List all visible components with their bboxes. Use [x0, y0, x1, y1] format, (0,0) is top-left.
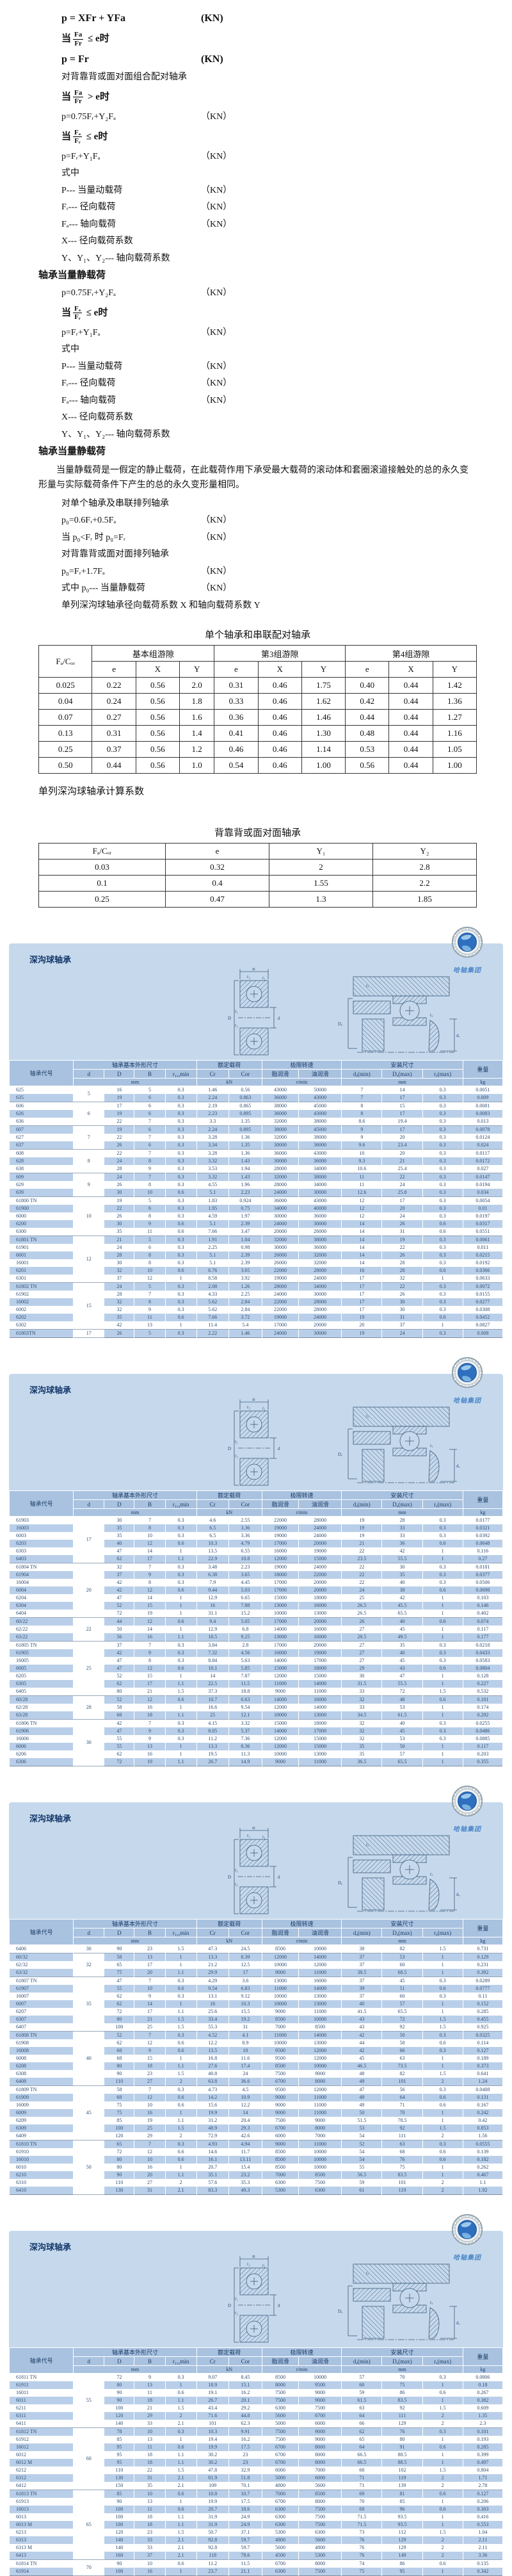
cell: 14000 [299, 1953, 342, 1962]
cell: 40000 [299, 1205, 342, 1212]
cell: 12000 [299, 2086, 342, 2094]
cell: 0.3 [422, 1205, 463, 1212]
cell: 1 [165, 2109, 196, 2117]
unit-header: kN [196, 1079, 262, 1086]
cell: 2.8 [372, 860, 476, 876]
cell: 39 [342, 1985, 382, 1993]
cell: 1.1 [165, 2117, 196, 2124]
cell: 0.0804 [463, 1665, 502, 1672]
cell: 85 [104, 2117, 134, 2124]
cell: 21 [104, 1236, 134, 1244]
table-row: 62551650.31.460.5643000500007140.30.0051 [10, 1086, 503, 1095]
cell: 120 [104, 2529, 134, 2536]
cell: 26000 [262, 1259, 298, 1267]
group-header: 基本组游隙 [92, 646, 214, 662]
cell: 16 [134, 1704, 165, 1711]
svg-text:r₁: r₁ [235, 2296, 238, 2301]
cell: 6700 [262, 2498, 298, 2506]
cell: 0.32 [165, 860, 269, 876]
cell: 42 [104, 1579, 134, 1586]
formula-line: 式中 p₀--- 当量静载荷（KN） [61, 583, 512, 594]
svg-text:rₐ: rₐ [430, 1443, 433, 1448]
cell: 1.6 [180, 710, 214, 726]
fraction-suffix: > e时 [85, 92, 109, 102]
cell: 19 [104, 1094, 134, 1102]
formula-text: 当 p₀<Fᵣ 时 p₀=Fᵣ [61, 532, 201, 544]
group-header: 极限转速 [262, 2348, 341, 2357]
cell: 80 [104, 2381, 134, 2389]
cell: 10.8 [196, 2490, 228, 2499]
header-row: dDBr₁,₂minCrCor脂润滑油润滑dₐ(min)Dₐ(max)rₐ(ma… [10, 2357, 503, 2366]
formula-line: p=0.75Fᵣ+Y₂Fₐ（KN） [61, 288, 512, 299]
bearing-code-cell: 6204 [10, 1594, 74, 1602]
bearing-code-cell: 16001 [10, 1259, 74, 1267]
cell: 0.3 [165, 1165, 196, 1173]
cell: 90 [104, 2171, 134, 2179]
fraction-denominator: Fᵣ [73, 137, 82, 145]
cell: 68 [104, 2094, 134, 2101]
bearing-code-cell: 61811 TN [10, 2374, 74, 2382]
sub-header: 油润滑 [299, 2357, 342, 2366]
bearing-code-cell: 6001 [10, 1251, 74, 1259]
cell: 0.455 [463, 2016, 502, 2023]
cell: 15000 [262, 1665, 298, 1672]
formula-line: p₀=0.6Fᵣ+0.5Fₐ（KN） [61, 515, 512, 526]
cell: 45 [382, 1657, 422, 1665]
cell: 31 [382, 1228, 422, 1236]
unit-header: kg [463, 1937, 502, 1945]
bore-diameter-cell: 9 [74, 1173, 104, 1197]
cell: 26 [342, 1618, 382, 1626]
svg-text:D: D [228, 1446, 231, 1451]
cell: 27 [342, 1657, 382, 1665]
cell: 1.5 [422, 2023, 463, 2032]
sub-header: rₐ(max) [422, 1500, 463, 1509]
formula-text: Fₐ--- 轴向载荷 [61, 395, 201, 407]
cell: 16.1 [196, 2156, 228, 2164]
cell: 8000 [299, 2560, 342, 2568]
cell: 13000 [299, 1610, 342, 1618]
cell: 24 [104, 1244, 134, 1251]
cell: 6300 [262, 2521, 298, 2529]
cell: 6700 [262, 2124, 298, 2132]
cell: 14 [196, 1672, 228, 1680]
formula-unit: （KN） [201, 362, 232, 371]
cell: 1 [422, 1633, 463, 1642]
cell: 2 [269, 860, 372, 876]
cell: 20000 [299, 1579, 342, 1586]
bearing-mounting-diagram: rₐ Dₐ rₐ dₐ [329, 973, 463, 1059]
cell: 110 [104, 2179, 134, 2187]
cell: 68 [104, 2055, 134, 2062]
cell: 26.7 [196, 1758, 228, 1766]
cell: 30 [104, 1517, 134, 1525]
cell: 1 [422, 1969, 463, 1977]
cell: 6 [134, 1141, 165, 1150]
cell: 1.35 [228, 1118, 262, 1126]
cell: 0.6 [422, 2506, 463, 2513]
cell: 14000 [262, 1657, 298, 1665]
bearing-table: 轴承代号轴承基本外形尺寸额定载荷极限转速安装尺寸重量dDBr₁,₂minCrCo… [9, 2347, 503, 2576]
cell: 14 [342, 1220, 382, 1228]
cell: 0.6 [422, 1220, 463, 1228]
column-header: 轴承代号 [10, 1061, 74, 1086]
cell: 6700 [299, 2412, 342, 2420]
cell: 1 [422, 1555, 463, 1563]
cell: 61.5 [382, 1711, 422, 1720]
cell: 111 [382, 2132, 422, 2140]
cell: 13.3 [196, 1953, 228, 1962]
cell: 71 [382, 2101, 422, 2109]
table-row: 0.070.270.561.60.360.461.460.440.441.27 [39, 710, 477, 726]
cell: 0.6 [422, 1267, 463, 1275]
cell: 43000 [299, 1110, 342, 1118]
cell: 9 [134, 2047, 165, 2055]
cell: 15 [382, 1102, 422, 1111]
cell: 5600 [299, 2482, 342, 2490]
fraction: FaFr [73, 31, 83, 47]
cell: 86 [382, 2389, 422, 2397]
cell: 31.1 [196, 1610, 228, 1618]
cell: 13.1 [196, 1993, 228, 2000]
formula-unit: （KN） [201, 567, 232, 576]
formula-line: Y、Y₁、Y₂--- 轴向载荷系数 [61, 253, 512, 265]
cell: 0.416 [463, 2513, 502, 2521]
cell: 19000 [262, 1314, 298, 1321]
bearing-code-cell: 625 [10, 1086, 74, 1095]
text-line: 对背靠背或面对面组合配对轴承 [61, 72, 512, 83]
cell: 65.5 [382, 1610, 422, 1618]
cell: 32000 [262, 1236, 298, 1244]
column-header: Fₐ/Cₒᵣ [39, 844, 166, 860]
formula-line: P--- 当量动载荷（KN） [61, 361, 512, 373]
cell: 8000 [299, 2078, 342, 2086]
bearing-code-cell: 6306 [10, 1758, 74, 1766]
cell: 0.731 [463, 1945, 502, 1953]
unit-header: kN [196, 2366, 262, 2374]
sub-header: Cor [228, 1928, 262, 1937]
cell: 80 [104, 2164, 134, 2171]
svg-text:dₐ: dₐ [456, 1892, 460, 1897]
cell: 0.116 [463, 1547, 502, 1555]
cell: 0.0551 [463, 1228, 502, 1236]
bearing-code-cell: 60/32 [10, 1953, 74, 1962]
cell: 0.3 [165, 1720, 196, 1728]
cell: 20000 [299, 1321, 342, 1330]
cell: 0.0583 [463, 1657, 502, 1665]
cell: 0.3 [165, 1330, 196, 1338]
cell: 8 [134, 1212, 165, 1220]
cell: 37 [342, 1961, 382, 1969]
cell: 0.0321 [463, 1524, 502, 1532]
bearing-mounting-diagram: rₐ Dₐ rₐ dₐ [329, 1832, 463, 1918]
cell: 0.44 [389, 726, 433, 742]
cell: 1.5 [422, 2124, 463, 2132]
cell: 22000 [299, 1571, 342, 1579]
cell: 12000 [262, 1743, 298, 1750]
cell: 4.45 [228, 1579, 262, 1586]
cell: 70.1 [228, 2482, 262, 2490]
bearing-code-cell: 61800 TN [10, 1197, 74, 1205]
cell: 47 [104, 1594, 134, 1602]
cell: 19000 [262, 1532, 298, 1540]
cell: 2 [165, 2132, 196, 2140]
table-row: 60992470.33.321.43320003800011220.30.014… [10, 1173, 503, 1182]
cell: 0.3 [422, 1189, 463, 1197]
cell: 0.3 [422, 1563, 463, 1572]
cell: 1 [422, 2568, 463, 2576]
cell: 19.5 [196, 1750, 228, 1758]
cell: 76 [342, 2552, 382, 2560]
cell: 42 [382, 1547, 422, 1555]
cell: 0.0827 [463, 1321, 502, 1330]
svg-text:dₐ: dₐ [456, 1033, 460, 1038]
cell: 30 [104, 1189, 134, 1197]
cell: 70 [342, 2498, 382, 2506]
cell: 88.5 [382, 2459, 422, 2466]
cell: 75 [382, 2164, 422, 2171]
table-row: 61801 TN122150.31.911.04320003800014190.… [10, 1236, 503, 1244]
cell: 0.53 [346, 742, 389, 758]
bearing-code-cell: 6304 [10, 1602, 74, 1610]
cell: 3.6 [228, 1977, 262, 1985]
cell: 47 [104, 1977, 134, 1985]
group-header: 安装尺寸 [342, 1491, 463, 1500]
group-header: 轴承基本外形尺寸 [74, 1491, 196, 1500]
cell: 40 [382, 1579, 422, 1586]
svg-text:dₐ: dₐ [456, 1463, 460, 1469]
cell: 0.0078 [463, 1126, 502, 1134]
cell: 0.0408 [463, 2086, 502, 2094]
cell: 24 [382, 1212, 422, 1220]
cell: 1.5 [165, 2124, 196, 2132]
cell: 10 [134, 2156, 165, 2164]
formula-text: Fᵣ--- 径向载荷 [61, 378, 201, 389]
header-row: 轴承代号轴承基本外形尺寸额定载荷极限转速安装尺寸重量 [10, 1491, 503, 1500]
unit-header: kN [196, 1509, 262, 1517]
cell: 55 [104, 1735, 134, 1743]
cell: 26.7 [196, 2397, 228, 2404]
cell: 34000 [299, 1283, 342, 1291]
cell: 1.1 [165, 2459, 196, 2466]
cell: 62 [104, 2000, 134, 2008]
cell: 2.39 [228, 1251, 262, 1259]
cell: 59.7 [228, 2544, 262, 2552]
cell: 54 [342, 2156, 382, 2164]
cell: 80 [104, 1688, 134, 1696]
bearing-code-cell: 6005 [10, 1665, 74, 1672]
cell: 52 [342, 2140, 382, 2149]
bearing-code-cell: 61913 [10, 2498, 74, 2506]
cell: 19.9 [196, 2109, 228, 2117]
unit-header: kg [463, 1079, 502, 1086]
cell: 5300 [262, 2187, 298, 2195]
cell: 24000 [299, 1275, 342, 1283]
cell: 76 [342, 2536, 382, 2544]
cell: 5600 [262, 2412, 298, 2420]
cell: 17 [382, 1126, 422, 1134]
bearing-panel: 哈轴集团 深沟球轴承 [9, 1802, 503, 2195]
cell: 62 [104, 1680, 134, 1688]
cell: 0.6 [422, 1314, 463, 1321]
cell: 0.04 [39, 694, 92, 710]
cell: 100 [104, 2506, 134, 2513]
cell: 19.4 [382, 1118, 422, 1126]
formula-unit: （KN） [201, 152, 232, 161]
cell: 0.6 [422, 2389, 463, 2397]
cell: 32 [104, 1267, 134, 1275]
cell: 68 [104, 1711, 134, 1720]
cell: 112 [382, 2529, 422, 2536]
formula-unit: （KN） [201, 379, 232, 388]
cell: 1.05 [433, 742, 476, 758]
cell: 0.3 [165, 1102, 196, 1111]
cell: 86 [382, 2560, 422, 2568]
cell: 2 [422, 2420, 463, 2428]
fraction-numerator: Fₐ [73, 305, 82, 314]
cell: 1 [422, 1961, 463, 1969]
cell: 90 [104, 2560, 134, 2568]
cell: 0.6 [422, 1985, 463, 1993]
cell: 119 [382, 2187, 422, 2195]
cell: 23.7 [196, 2568, 228, 2576]
cell: 4800 [299, 2544, 342, 2552]
cell: 52 [104, 2032, 134, 2040]
bearing-code-cell: 6309 [10, 2124, 74, 2132]
table-row: 0.500.440.561.00.540.461.000.560.441.00 [39, 758, 477, 774]
cell: 2.39 [228, 1220, 262, 1228]
cell: 8000 [299, 2451, 342, 2459]
cell: 111 [382, 2412, 422, 2420]
cell: 0.0218 [463, 1642, 502, 1650]
cell: 0.1 [39, 876, 166, 892]
cell: 11.6 [228, 2055, 262, 2062]
cell: 28.5 [342, 1633, 382, 1642]
cell: 6300 [299, 2529, 342, 2536]
fraction-prefix: 当 [61, 131, 71, 142]
cell: 10 [134, 2428, 165, 2436]
cell: 0.0317 [463, 1220, 502, 1228]
cell: 0.025 [39, 678, 92, 694]
unit-header: mm [74, 1509, 196, 1517]
cell: 0.3 [165, 1993, 196, 2000]
cell: 26000 [299, 1228, 342, 1236]
cell: 18000 [299, 1720, 342, 1728]
cell: 2 [422, 2187, 463, 2195]
bearing-code-cell: 626 [10, 1110, 74, 1118]
fraction-numerator: Fₐ [73, 129, 82, 138]
cell: 1.00 [433, 758, 476, 774]
cell: 20 [382, 1205, 422, 1212]
cell: 2.3 [463, 2420, 502, 2428]
cell: 6000 [262, 2466, 298, 2474]
cell: 1 [165, 1610, 196, 1618]
cell: 42 [104, 1720, 134, 1728]
cell: 7500 [262, 2397, 298, 2404]
cell: 7500 [262, 2428, 298, 2436]
svg-text:B: B [252, 1398, 255, 1402]
formula-section: p = XFr + YFa(KN)当FaFr ≤ e时p = Fr(KN)对背靠… [0, 0, 512, 611]
cell: 60 [382, 1961, 422, 1969]
cell: 0.31 [214, 678, 258, 694]
cell: 82 [382, 2070, 422, 2078]
cell: 7000 [262, 2490, 298, 2499]
cell: 11 [134, 2506, 165, 2513]
cell: 0.0555 [463, 2140, 502, 2149]
cell: 4.33 [196, 1291, 228, 1298]
cell: 0.3 [165, 1197, 196, 1205]
cell: 8 [134, 1524, 165, 1532]
cell: 8500 [262, 2016, 298, 2023]
cell: 13000 [299, 2000, 342, 2008]
cell: 0.117 [463, 1743, 502, 1750]
cell: 9500 [262, 2086, 298, 2094]
cell: 9000 [262, 2094, 298, 2101]
cell: 56 [382, 2086, 422, 2094]
cell: 0.3 [422, 1283, 463, 1291]
cell: 21 [134, 2404, 165, 2412]
sub-header: X [258, 662, 301, 678]
cell: 1.5 [165, 1688, 196, 1696]
cell: 50 [382, 2032, 422, 2040]
cell: 0.6 [422, 2101, 463, 2109]
group-header: 极限转速 [262, 1061, 341, 1070]
cell: 10000 [262, 2039, 298, 2047]
cell: 17 [382, 1094, 422, 1102]
cell: 12 [134, 1696, 165, 1704]
svg-text:r₁: r₁ [235, 1868, 238, 1873]
sub-header: 脂润滑 [262, 1500, 298, 1509]
cell: 93.5 [382, 2513, 422, 2521]
body-paragraph: 当量静载荷是一假定的静止载荷，在此载荷作用下承受最大载荷的滚动体和套圈滚道接触处… [38, 464, 474, 493]
cell: 19 [342, 1517, 382, 1525]
cell: 0.4 [165, 876, 269, 892]
sub-header: rₐ(max) [422, 1928, 463, 1937]
formula-line: 当 p₀<Fᵣ 时 p₀=Fᵣ（KN） [61, 532, 512, 544]
units-row: mmkNr/minmmkg [10, 2366, 503, 2374]
cell: 32000 [262, 1134, 298, 1141]
cell: 4.29 [196, 1977, 228, 1985]
cell: 10000 [299, 2374, 342, 2382]
cell: 0.865 [228, 1102, 262, 1111]
cell: 8 [134, 1298, 165, 1306]
cell: 17 [382, 1110, 422, 1118]
cell: 0.0061 [463, 1236, 502, 1244]
cell: 9.07 [196, 2374, 228, 2382]
cell: 29.2 [228, 2404, 262, 2412]
cell: 0.44 [92, 758, 136, 774]
cell: 1.1 [165, 2008, 196, 2016]
cell: 2.55 [228, 1517, 262, 1525]
cell: 1.4 [180, 726, 214, 742]
column-header: e [165, 844, 269, 860]
cell: 12 [342, 1197, 382, 1205]
cell: 0.174 [463, 1704, 502, 1711]
cell: 91 [382, 2443, 422, 2451]
cell: 7 [134, 2086, 165, 2094]
cell: 18 [134, 2451, 165, 2459]
fraction-suffix: ≤ e时 [84, 131, 108, 142]
bearing-code-cell: 61908 [10, 2039, 74, 2047]
cell: 5.62 [196, 1298, 228, 1306]
cell: 0.3 [422, 1977, 463, 1985]
cell: 17000 [262, 1586, 298, 1594]
cell: 8.05 [196, 1727, 228, 1735]
sub-header: dₐ(min) [342, 1070, 382, 1079]
cell: 10.8 [228, 1555, 262, 1563]
cell: 4.59 [196, 1212, 228, 1220]
cell: 1.27 [433, 710, 476, 726]
